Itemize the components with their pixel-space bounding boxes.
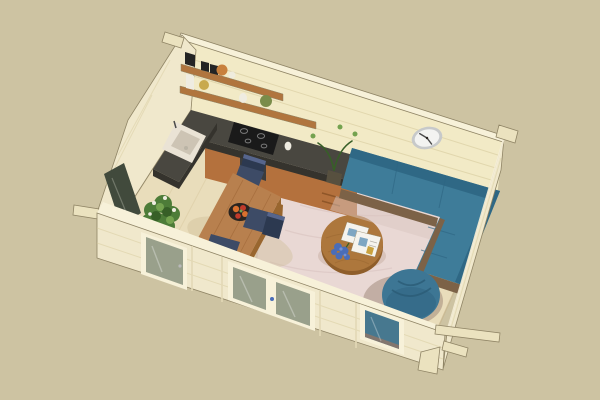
yellow-jar (199, 80, 209, 90)
green-jar (260, 95, 272, 107)
cabin-render (0, 0, 600, 400)
white-bottle (186, 74, 194, 90)
door-handle (178, 264, 181, 267)
amber-jar (217, 65, 228, 76)
door-handle (270, 297, 274, 301)
cabin-render-svg (0, 0, 600, 400)
